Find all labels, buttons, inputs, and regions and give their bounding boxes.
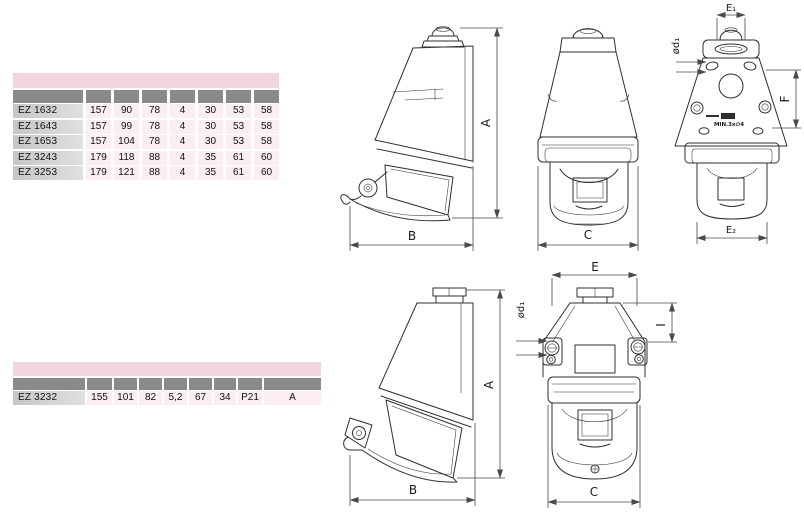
dim-label-c: C (590, 485, 598, 499)
dimensions-table-top: EZ 1632 157 90 78 4 30 53 58 EZ 1643 157… (13, 73, 279, 180)
socket-front-outline (543, 288, 647, 479)
dim-label-f: F (778, 95, 792, 102)
column-header-cell (139, 378, 162, 390)
dim-value-cell: 53 (226, 135, 251, 149)
dim-value-cell: 60 (254, 166, 279, 180)
socket-side-outline (341, 27, 473, 221)
dim-value-cell: 179 (86, 166, 111, 180)
dim-value-cell: 4 (170, 151, 195, 165)
dim-value-cell: 99 (114, 120, 139, 134)
column-header-cell (170, 90, 195, 103)
drawing-bottom-side-view: A B (335, 275, 515, 513)
dim-value-cell: 4 (170, 104, 195, 118)
column-header-cell (87, 378, 112, 390)
dim-value-cell: 155 (87, 391, 112, 405)
model-name-cell: EZ 1653 (13, 135, 83, 149)
dim-value-cell: 157 (86, 120, 111, 134)
drawing-top-side-view: A B (335, 20, 515, 258)
table-pink-header (13, 73, 279, 88)
dim-value-cell: 30 (198, 120, 223, 134)
column-header-cell (226, 90, 251, 103)
dim-value-cell: 90 (114, 104, 139, 118)
model-name-cell: EZ 3243 (13, 151, 83, 165)
dim-label-b: B (409, 483, 417, 497)
column-header-cell (13, 378, 85, 390)
model-name-cell: EZ 3232 (13, 391, 85, 405)
dim-value-cell: 82 (139, 391, 162, 405)
dim-value-cell: 118 (114, 151, 139, 165)
column-header-cell (254, 90, 279, 103)
dim-value-cell: 4 (170, 120, 195, 134)
dim-label-e1: E₁ (726, 3, 736, 14)
model-name-cell: EZ 1632 (13, 104, 83, 118)
dim-value-cell: A (264, 391, 321, 405)
mounting-base-outline: MIN.3x∅4 (675, 28, 787, 219)
dim-value-cell: 53 (226, 120, 251, 134)
mounting-screw-note: MIN.3x∅4 (714, 122, 744, 128)
drawing-top-front-view: C (532, 20, 662, 258)
dim-label-e: E (591, 260, 599, 274)
column-header-cell (86, 90, 111, 103)
dim-value-cell: 58 (254, 120, 279, 134)
dim-value-cell: 101 (114, 391, 137, 405)
column-header-cell (142, 90, 167, 103)
column-header-cell (264, 378, 321, 390)
dimension-annotations: A B (350, 290, 505, 506)
dim-value-cell: 61 (226, 166, 251, 180)
dim-value-cell: 35 (198, 151, 223, 165)
dim-label-b: B (408, 229, 416, 243)
dim-value-cell: 5,2 (164, 391, 187, 405)
drawing-top-back-view: MIN.3x∅4 E₁ ød₁ F E₂ (662, 2, 804, 254)
column-header-cell (198, 90, 223, 103)
dim-value-cell: 60 (254, 151, 279, 165)
column-header-cell (13, 90, 83, 103)
dim-label-c: C (584, 228, 592, 242)
dim-value-cell: 88 (142, 151, 167, 165)
dim-label-i: I (654, 323, 668, 327)
column-header-cell (114, 378, 137, 390)
dim-value-cell: 78 (142, 120, 167, 134)
dim-value-cell: 88 (142, 166, 167, 180)
dim-value-cell: 30 (198, 104, 223, 118)
dim-value-cell: 157 (86, 135, 111, 149)
drawing-bottom-front-view: E ød₁ I C (512, 262, 684, 512)
dim-label-a: A (479, 118, 493, 127)
column-header-cell (114, 90, 139, 103)
dimensions-table-bottom: EZ 3232 155 101 82 5,2 67 34 P21 A (13, 362, 321, 405)
column-header-cell (164, 378, 187, 390)
dim-label-e2: E₂ (726, 225, 736, 236)
dim-value-cell: 4 (170, 166, 195, 180)
dim-value-cell: 34 (214, 391, 236, 405)
column-header-cell (214, 378, 236, 390)
table-pink-header (13, 362, 321, 376)
dim-label-d1: ød₁ (671, 38, 682, 54)
socket-front-outline (538, 28, 638, 225)
dim-value-cell: 67 (189, 391, 212, 405)
dim-value-cell: 58 (254, 104, 279, 118)
socket-side-outline (344, 288, 473, 482)
dim-value-cell: 78 (142, 104, 167, 118)
dim-value-cell: 157 (86, 104, 111, 118)
dim-value-cell: 4 (170, 135, 195, 149)
dim-value-cell: 53 (226, 104, 251, 118)
column-header-cell (238, 378, 262, 390)
column-header-cell (189, 378, 212, 390)
dim-value-cell: 58 (254, 135, 279, 149)
dim-label-a: A (482, 380, 496, 389)
catalog-page: EZ 1632 157 90 78 4 30 53 58 EZ 1643 157… (0, 0, 804, 514)
dim-value-cell: 35 (198, 166, 223, 180)
dim-value-cell: 179 (86, 151, 111, 165)
dim-value-cell: 78 (142, 135, 167, 149)
model-name-cell: EZ 3253 (13, 166, 83, 180)
dimension-annotations: A B (350, 28, 503, 251)
dim-value-cell: 30 (198, 135, 223, 149)
dim-value-cell: P21 (238, 391, 262, 405)
model-name-cell: EZ 1643 (13, 120, 83, 134)
dim-value-cell: 61 (226, 151, 251, 165)
dim-value-cell: 104 (114, 135, 139, 149)
dim-label-d1: ød₁ (516, 302, 527, 318)
dim-value-cell: 121 (114, 166, 139, 180)
